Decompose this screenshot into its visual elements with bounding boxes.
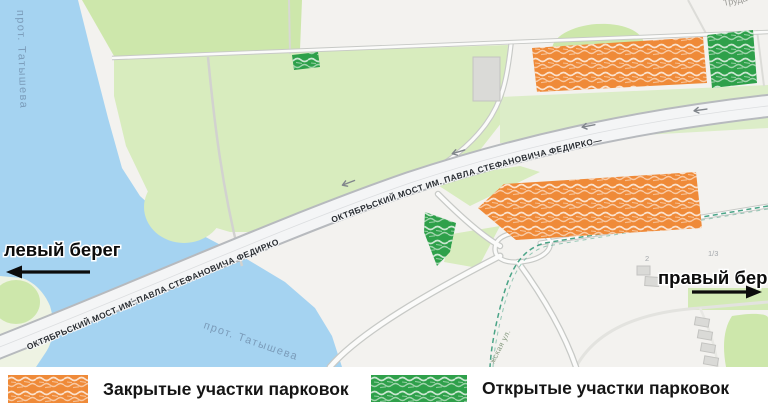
open-parking-zone-north	[707, 30, 757, 88]
open-parking-zone-small	[292, 52, 320, 70]
legend-item-open: Открытые участки парковок	[371, 375, 729, 402]
house-number-2: 2	[645, 254, 649, 263]
house-number-13: 1/3	[708, 249, 718, 258]
map: ОКТЯБРЬСКИЙ МОСТ ИМ. ПАВЛА СТЕФАНОВИЧА Ф…	[0, 0, 768, 367]
screenshot-root: ОКТЯБРЬСКИЙ МОСТ ИМ. ПАВЛА СТЕФАНОВИЧА Ф…	[0, 0, 768, 420]
left-bank-label: левый берег	[4, 239, 121, 260]
legend-label-open: Открытые участки парковок	[482, 378, 729, 399]
open-parking-swatch	[371, 375, 467, 402]
legend-item-closed: Закрытые участки парковок	[8, 375, 349, 403]
legend: Закрытые участки парковок Открытые участ…	[0, 367, 768, 420]
closed-parking-swatch	[8, 375, 88, 403]
legend-label-closed: Закрытые участки парковок	[103, 379, 349, 400]
river-bank-bulge	[144, 171, 224, 243]
right-bank-label: правый берег	[658, 267, 768, 288]
